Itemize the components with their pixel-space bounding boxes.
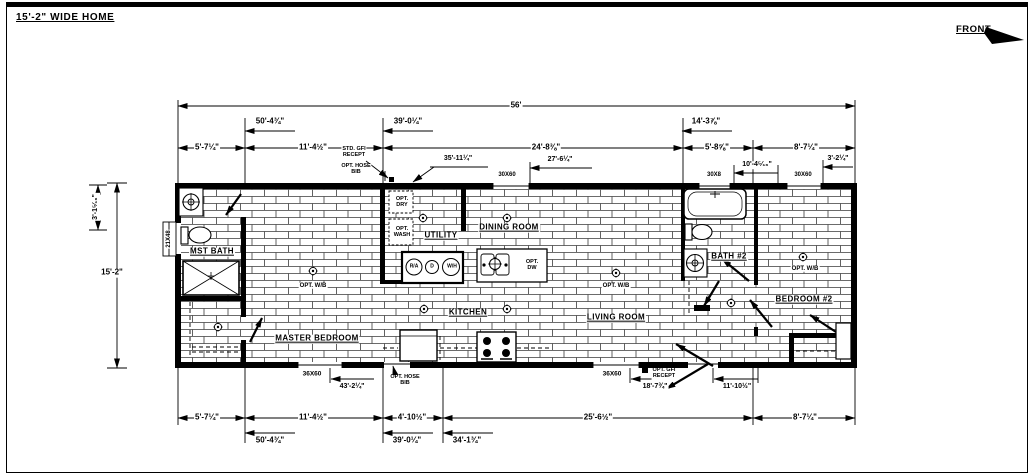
- dim-leader-27: 27'-6¼": [547, 156, 574, 164]
- room-label-kitchen: KITCHEN: [448, 309, 488, 318]
- room-label-living: LIVING ROOM: [586, 314, 646, 323]
- toilet-icon: [181, 227, 211, 244]
- room-label-mst-bath: MST BATH: [189, 248, 235, 257]
- dim-leader-11: 11'-10½": [722, 383, 752, 391]
- dim-leader-3: 3'-2¼": [827, 155, 850, 163]
- dim-left-upper: 3'-1⁵⁄₁₆": [92, 193, 100, 221]
- dim-top-seg2: 11'-4½": [298, 144, 328, 153]
- refrigerator-icon: [400, 330, 437, 361]
- note-std-gfi: STD. GFI RECEPT: [341, 147, 366, 159]
- lavatory-icon: [684, 249, 707, 277]
- dim-top-seg1: 5'-7¼": [194, 144, 220, 153]
- dim-top-run14: 14'-3⅞": [691, 118, 721, 127]
- toilet-icon: [685, 224, 712, 240]
- dim-left-overall: 15'-2": [100, 269, 124, 278]
- dim-leader-43: 43'-2¼": [339, 383, 366, 391]
- equipment-label-return-air: R/A: [410, 264, 419, 269]
- room-label-bath2: BATH #2: [710, 253, 748, 262]
- floorplan-drawing: [0, 0, 1032, 476]
- note-opt-wash: OPT. WASH: [393, 227, 412, 239]
- room-label-utility: UTILITY: [423, 232, 458, 241]
- range-icon: [477, 332, 516, 362]
- dim-bottom-run39: 39'-0¼": [392, 437, 422, 446]
- dim-top-run39: 39'-0¼": [393, 118, 423, 127]
- floorplan-sheet: 15'-2" WIDE HOME FRONT: [0, 0, 1032, 476]
- gfi-receptacle-icon: [642, 368, 648, 373]
- dim-bottom-run50: 50'-4¾": [255, 437, 285, 446]
- dim-bottom-seg3: 4'-10½": [397, 414, 427, 423]
- window-label-top-a: 30X60: [497, 172, 516, 178]
- gfi-receptacle-icon: [389, 177, 394, 182]
- dim-top-seg4: 5'-8⅝": [704, 144, 730, 153]
- dim-top-seg3: 24'-8⅜": [531, 144, 561, 153]
- note-opt-wb-bedroom2: OPT. W/B: [791, 266, 820, 272]
- dim-bottom-seg4: 25'-6½": [583, 414, 613, 423]
- window-label-top-c: 30X60: [793, 172, 812, 178]
- room-label-master-bedroom: MASTER BEDROOM: [274, 335, 359, 344]
- note-opt-wb-living: OPT. W/B: [602, 283, 631, 289]
- note-opt-dry: OPT. DRY: [395, 197, 409, 209]
- dim-overall-width: 56': [510, 102, 523, 111]
- note-opt-hose-top: OPT. HOSE BIB: [340, 164, 371, 176]
- dresser-icon: [836, 323, 851, 359]
- window-label-top-b: 30X8: [706, 172, 722, 178]
- window-label-21x48: 21X48: [166, 229, 172, 248]
- bathtub-icon: [684, 189, 746, 219]
- front-arrow-icon: [984, 27, 1024, 44]
- dim-leader-18: 18'-7¾": [642, 383, 669, 391]
- note-opt-wb-master: OPT. W/B: [299, 283, 328, 289]
- shower-icon: [183, 261, 239, 295]
- window-label-bottom-a: 36X60: [302, 370, 323, 377]
- note-opt-gfi-bottom: OPT. GFI RECEPT: [652, 368, 677, 380]
- note-opt-dw: OPT. DW: [525, 260, 539, 272]
- dim-leader-10: 10'-4⁵⁄₁₆": [741, 161, 773, 169]
- lavatory-icon: [179, 188, 203, 216]
- dim-bottom-seg2: 11'-4½": [298, 414, 328, 423]
- room-label-bedroom2: BEDROOM #2: [775, 296, 834, 305]
- dim-bottom-run34: 34'-1¾": [452, 437, 482, 446]
- dim-bottom-seg5: 8'-7¼": [792, 414, 818, 423]
- dim-top-seg5: 8'-7¼": [793, 144, 819, 153]
- window-label-bottom-b: 36X60: [602, 370, 623, 377]
- room-label-dining: DINING ROOM: [478, 224, 540, 233]
- note-opt-hose-bottom: OPT. HOSE BIB: [389, 375, 420, 387]
- dim-bottom-seg1: 5'-7¼": [194, 414, 220, 423]
- equipment-label-water-heater: W/H: [447, 264, 457, 269]
- dim-leader-35: 35'-11¼": [443, 155, 473, 163]
- dim-top-run50: 50'-4¾": [255, 118, 285, 127]
- equipment-label-d: D: [430, 264, 434, 269]
